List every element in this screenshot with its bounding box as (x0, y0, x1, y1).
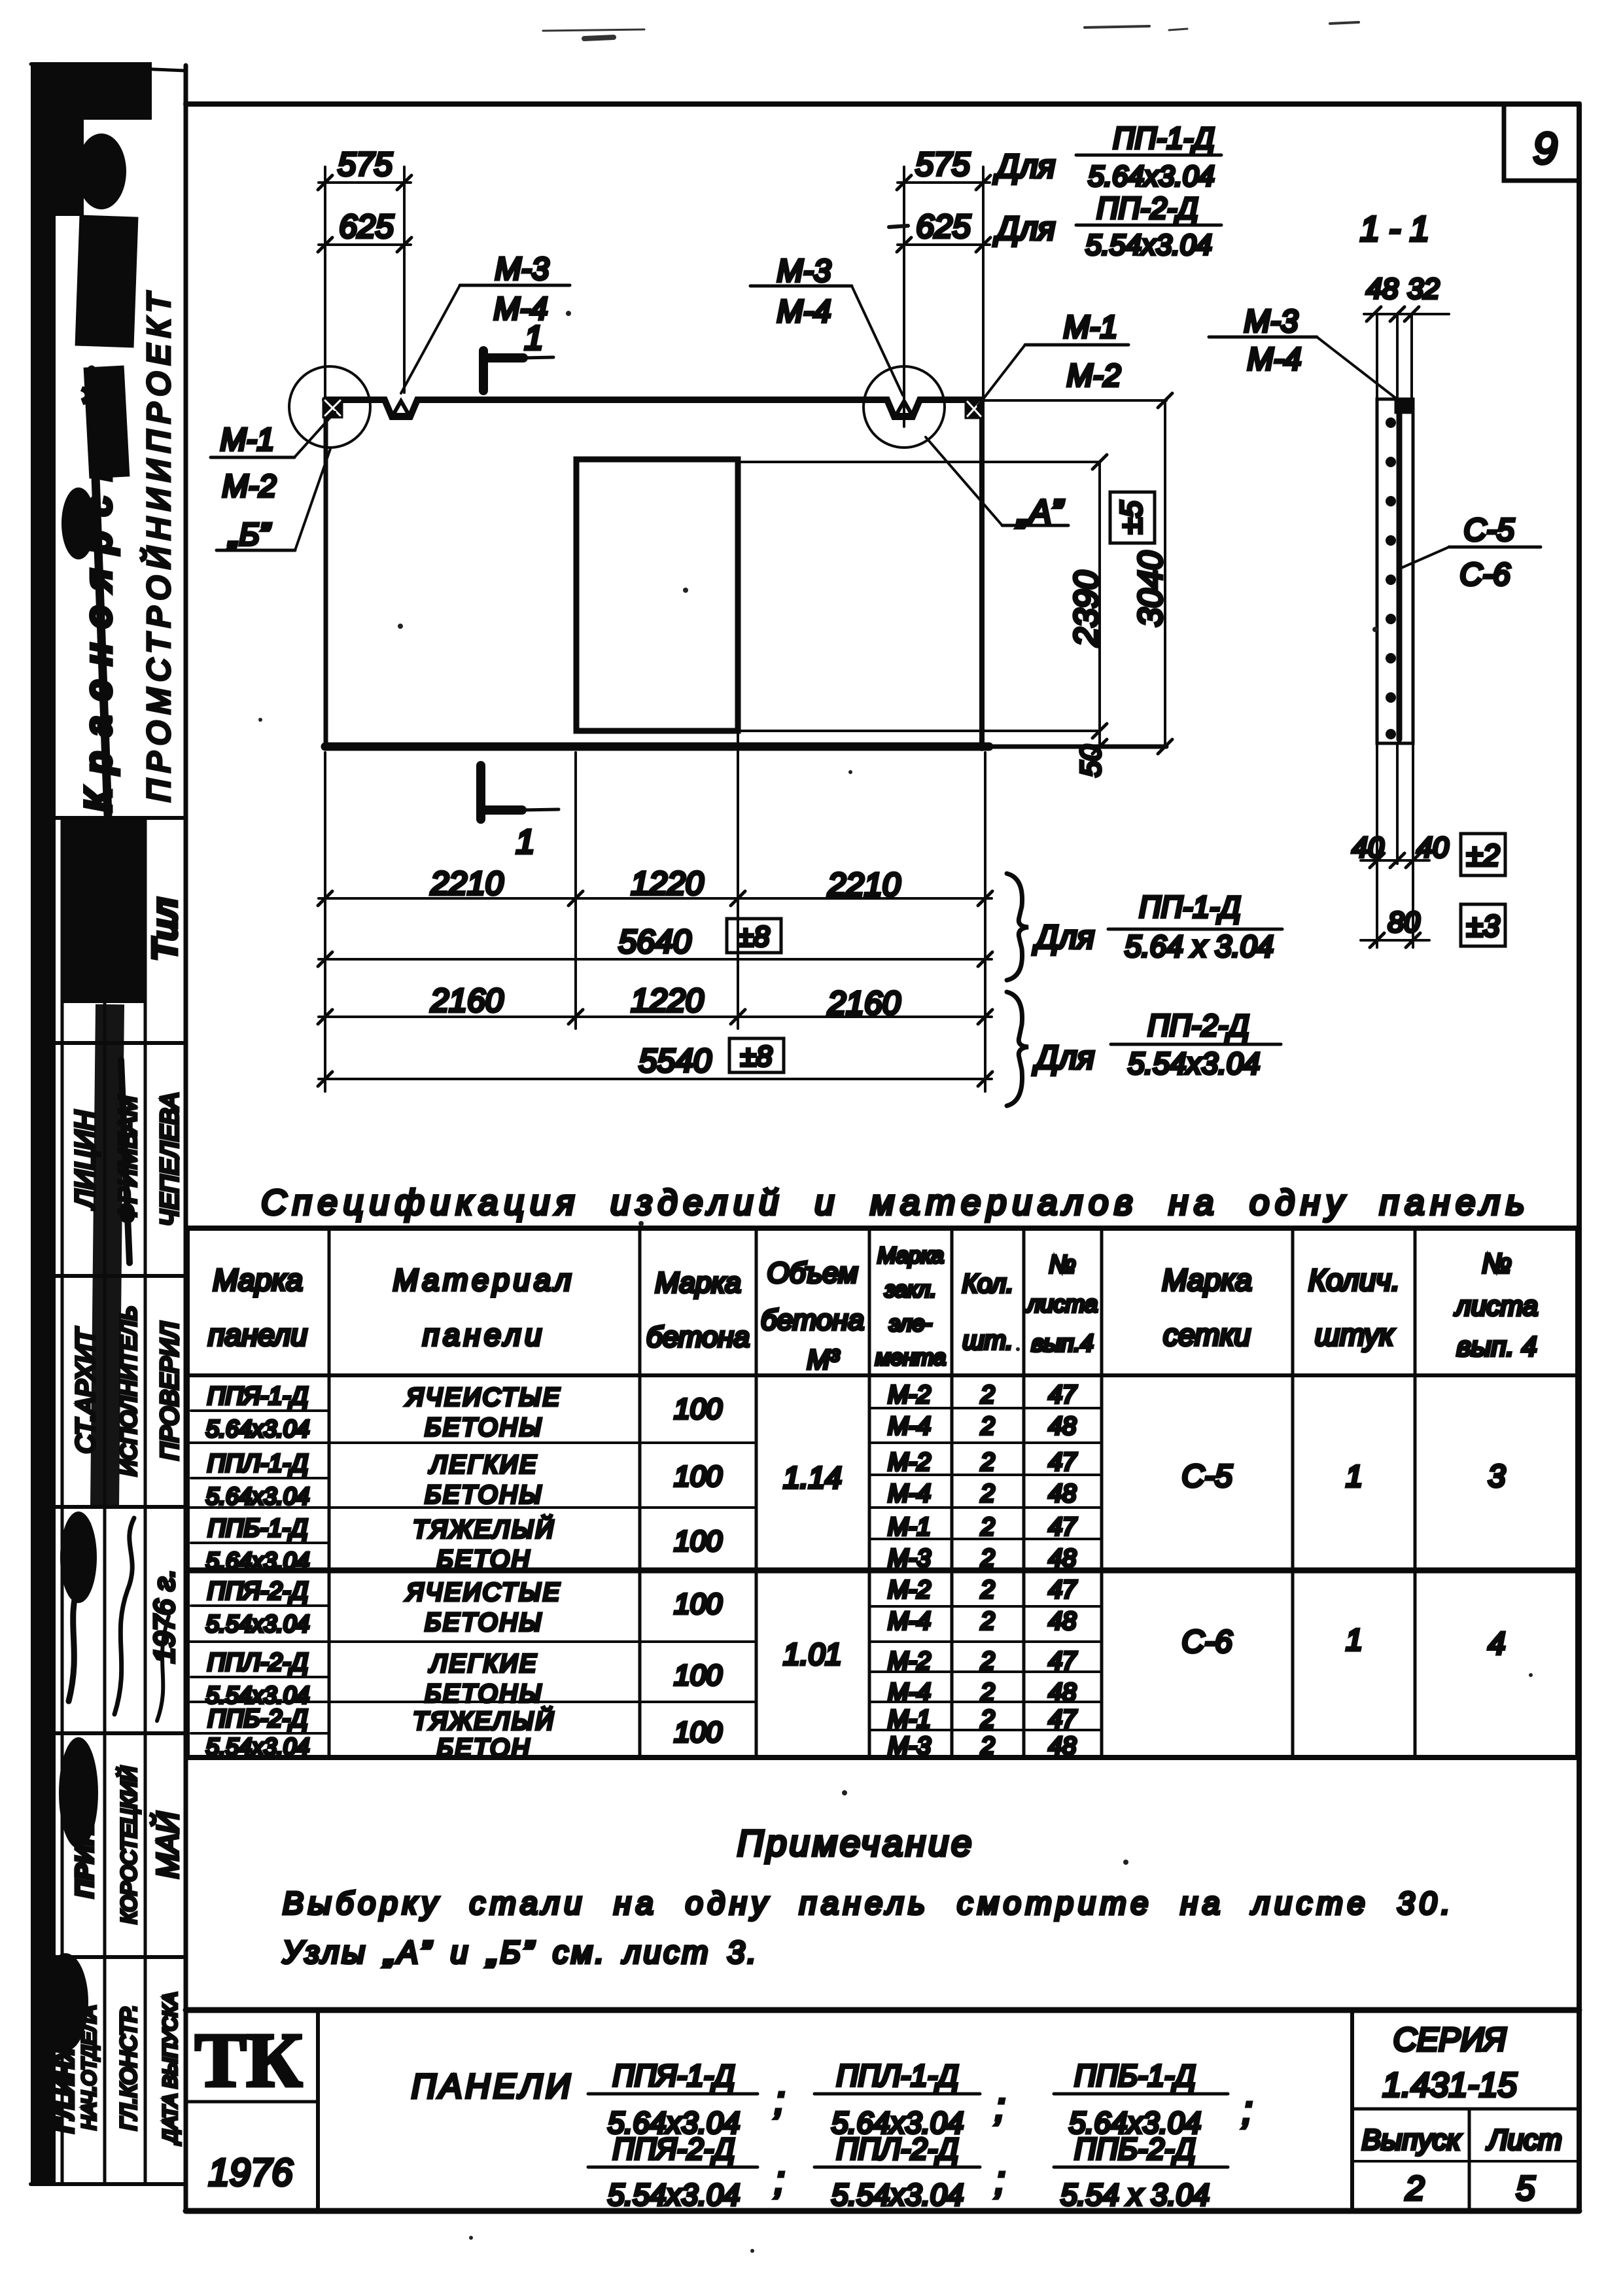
svg-text:ППБ-1-Д: ППБ-1-Д (1074, 2058, 1195, 2093)
svg-text:ЧЕПЕЛЕВА: ЧЕПЕЛЕВА (156, 1093, 184, 1227)
svg-text:ПП-2-Д: ПП-2-Д (1096, 191, 1198, 225)
svg-text:Спецификация изделий и материа: Спецификация изделий и материалов на одн… (261, 1183, 1530, 1222)
svg-text:ТЯЖЕЛЫЙ: ТЯЖЕЛЫЙ (413, 1515, 555, 1544)
svg-text:2: 2 (980, 1679, 994, 1706)
svg-text:1: 1 (516, 823, 535, 861)
svg-text:100: 100 (674, 1525, 722, 1557)
svg-text:2: 2 (980, 1545, 994, 1572)
svg-text:М-3: М-3 (1244, 304, 1299, 339)
svg-text:М-3: М-3 (888, 1545, 930, 1572)
svg-text:1: 1 (1346, 1623, 1363, 1657)
svg-text:50: 50 (1075, 745, 1107, 777)
svg-text:эле-: эле- (889, 1311, 932, 1336)
svg-text:±8: ±8 (741, 1040, 773, 1072)
svg-text:М-2: М-2 (888, 1576, 930, 1604)
svg-text:листа: листа (1454, 1290, 1538, 1321)
svg-text:№: № (1482, 1248, 1512, 1279)
svg-text:;: ; (774, 2158, 785, 2202)
svg-text:40: 40 (1417, 832, 1449, 864)
svg-text:2: 2 (980, 1513, 994, 1541)
svg-text:2210: 2210 (430, 865, 503, 902)
svg-text:5.64х3.04: 5.64х3.04 (1088, 160, 1214, 192)
svg-text:Лист: Лист (1486, 2124, 1562, 2156)
svg-text:48: 48 (1049, 1733, 1076, 1760)
svg-text:С-6: С-6 (1181, 1625, 1232, 1659)
svg-text:5.54х3.04: 5.54х3.04 (206, 1733, 309, 1760)
svg-text:М-1: М-1 (888, 1513, 930, 1541)
svg-text:бетона: бетона (761, 1304, 864, 1336)
svg-text:вып. 4: вып. 4 (1457, 1331, 1537, 1362)
svg-text:Кол.: Кол. (962, 1269, 1014, 1298)
svg-text:100: 100 (674, 1659, 722, 1691)
svg-text:1976: 1976 (208, 2151, 293, 2194)
svg-text:80: 80 (1388, 906, 1420, 938)
svg-text:2: 2 (980, 1733, 994, 1760)
svg-text:вып.4: вып.4 (1031, 1330, 1093, 1356)
svg-text:мента: мента (875, 1345, 946, 1370)
svg-text:5.54х3.04: 5.54х3.04 (206, 1682, 309, 1708)
svg-text:1-1: 1-1 (1360, 209, 1439, 249)
svg-text:5.54х3.04: 5.54х3.04 (206, 1610, 309, 1637)
svg-text:5.54х3.04: 5.54х3.04 (1085, 229, 1212, 261)
svg-text:5.64х3.04: 5.64х3.04 (206, 1415, 309, 1442)
svg-text:ПАНЕЛИ: ПАНЕЛИ (411, 2068, 573, 2106)
svg-text:9: 9 (1533, 124, 1558, 173)
svg-text:ППЛ-1-Д: ППЛ-1-Д (207, 1450, 308, 1477)
svg-text:1220: 1220 (631, 982, 703, 1019)
svg-text:32: 32 (1408, 273, 1440, 305)
svg-text:2: 2 (1405, 2170, 1425, 2208)
svg-text:100: 100 (674, 1393, 722, 1425)
svg-text:100: 100 (674, 1588, 722, 1620)
svg-text:;: ; (994, 2158, 1005, 2202)
svg-text:М-2: М-2 (888, 1449, 930, 1476)
svg-text:М-4: М-4 (494, 292, 548, 327)
svg-text:1220: 1220 (631, 865, 703, 902)
svg-text:ЛЕГКИЕ: ЛЕГКИЕ (428, 1451, 538, 1479)
svg-text:1976 г.: 1976 г. (148, 1569, 181, 1663)
svg-text:МАЙ: МАЙ (150, 1812, 184, 1879)
svg-text:М-4: М-4 (1248, 342, 1302, 377)
svg-text:;: ; (1242, 2088, 1253, 2132)
svg-text:±3: ±3 (1467, 909, 1500, 943)
svg-text:ППЛ-2-Д: ППЛ-2-Д (837, 2132, 959, 2166)
svg-text:панели: панели (423, 1318, 546, 1352)
svg-text:С-6: С-6 (1459, 557, 1510, 592)
svg-text:М-3: М-3 (495, 252, 550, 287)
svg-text:±8: ±8 (738, 921, 770, 953)
svg-text:;: ; (774, 2078, 785, 2122)
svg-text:2: 2 (980, 1449, 994, 1476)
svg-text:2210: 2210 (827, 866, 900, 903)
svg-text:2390: 2390 (1068, 571, 1106, 647)
svg-text:Для: Для (993, 210, 1055, 247)
svg-text:М-4: М-4 (777, 294, 831, 329)
svg-text:Для: Для (1032, 919, 1094, 955)
svg-text:Выборку стали на одну панель с: Выборку стали на одну панель смотрите на… (283, 1886, 1455, 1921)
svg-text:бетона: бетона (646, 1321, 750, 1353)
svg-text:47: 47 (1049, 1449, 1077, 1476)
svg-text:ЛИЦИН: ЛИЦИН (69, 1110, 100, 1210)
svg-text:625: 625 (916, 208, 971, 245)
svg-text:47: 47 (1049, 1381, 1077, 1409)
svg-text:БЕТОН: БЕТОН (437, 1735, 531, 1762)
svg-text:100: 100 (674, 1716, 722, 1748)
svg-text:М-1: М-1 (220, 423, 275, 457)
svg-text:БЕТОН: БЕТОН (437, 1546, 531, 1574)
svg-text:ТК: ТК (195, 2017, 302, 2103)
svg-text:5.54х3.04: 5.54х3.04 (1128, 1046, 1260, 1080)
svg-text:шт.: шт. (962, 1326, 1013, 1355)
svg-text:2: 2 (980, 1381, 994, 1409)
svg-text:М-2: М-2 (888, 1648, 930, 1675)
svg-text:М-1: М-1 (888, 1706, 930, 1733)
svg-text:ППЯ-2-Д: ППЯ-2-Д (613, 2132, 735, 2166)
svg-text:ППЯ-1-Д: ППЯ-1-Д (207, 1383, 308, 1410)
svg-text:2: 2 (980, 1576, 994, 1604)
svg-text:2: 2 (980, 1648, 994, 1675)
svg-text:Марка: Марка (213, 1263, 302, 1297)
svg-text:Объем: Объем (767, 1257, 858, 1289)
svg-text:№: № (1049, 1251, 1075, 1279)
svg-text:5.64 х 3.04: 5.64 х 3.04 (1125, 929, 1274, 963)
svg-text:ТЯЖЕЛЫЙ: ТЯЖЕЛЫЙ (413, 1706, 555, 1735)
svg-text:Для: Для (1032, 1039, 1094, 1076)
svg-text:2: 2 (980, 1480, 994, 1508)
svg-text:ППЯ-2-Д: ППЯ-2-Д (207, 1578, 308, 1605)
svg-text:М-3: М-3 (888, 1733, 930, 1760)
svg-text:48: 48 (1049, 1545, 1076, 1572)
svg-text:ПРОМСТРОЙНИИПРОЕКТ: ПРОМСТРОЙНИИПРОЕКТ (141, 287, 177, 802)
svg-text:ППБ-1-Д: ППБ-1-Д (207, 1515, 307, 1542)
svg-text:БЕТОНЫ: БЕТОНЫ (425, 1609, 543, 1636)
svg-text:5.54х3.04: 5.54х3.04 (831, 2178, 964, 2212)
svg-text:ПРОВЕРИЛ: ПРОВЕРИЛ (156, 1321, 184, 1460)
svg-text:ППЛ-2-Д: ППЛ-2-Д (207, 1649, 308, 1676)
svg-text:СЕРИЯ: СЕРИЯ (1393, 2021, 1507, 2058)
svg-text:ПП-2-Д: ПП-2-Д (1147, 1008, 1249, 1042)
svg-text:48: 48 (1049, 1608, 1076, 1635)
svg-text:3: 3 (1488, 1459, 1506, 1494)
svg-text:625: 625 (339, 208, 394, 245)
svg-text:2: 2 (980, 1608, 994, 1635)
svg-text:С-5: С-5 (1181, 1459, 1232, 1494)
svg-text:2160: 2160 (827, 985, 900, 1021)
svg-text:5.64х3.04: 5.64х3.04 (206, 1547, 309, 1574)
svg-text:1: 1 (1346, 1459, 1363, 1493)
svg-text:5.54 х 3.04: 5.54 х 3.04 (1060, 2178, 1210, 2212)
svg-text:панели: панели (208, 1318, 307, 1352)
svg-text:Колич.: Колич. (1308, 1263, 1400, 1297)
svg-text:М-2: М-2 (1067, 359, 1121, 393)
svg-text:ППЛ-1-Д: ППЛ-1-Д (837, 2058, 959, 2093)
svg-text:Примечание: Примечание (737, 1822, 975, 1863)
svg-text:ЯЧЕИСТЫЕ: ЯЧЕИСТЫЕ (406, 1384, 561, 1411)
svg-text:47: 47 (1049, 1706, 1077, 1733)
svg-text:М³: М³ (807, 1344, 840, 1375)
svg-text:Тил: Тил (145, 897, 184, 961)
svg-text:5640: 5640 (618, 923, 691, 960)
svg-text:Марка: Марка (877, 1243, 944, 1268)
svg-text:штук: штук (1315, 1318, 1395, 1352)
svg-text:ПП-1-Д: ПП-1-Д (1113, 121, 1214, 155)
svg-text:Материал: Материал (393, 1263, 576, 1297)
svg-text:1.431-15: 1.431-15 (1382, 2066, 1517, 2104)
svg-text:ЛЕГКИЕ: ЛЕГКИЕ (428, 1650, 538, 1678)
svg-text:48: 48 (1367, 273, 1399, 305)
svg-text:575: 575 (915, 146, 970, 183)
svg-text:„Б”: „Б” (227, 518, 271, 552)
svg-text:47: 47 (1049, 1576, 1077, 1604)
svg-text:ППЯ-1-Д: ППЯ-1-Д (613, 2058, 735, 2093)
svg-text:С-5: С-5 (1463, 513, 1514, 548)
svg-text:сетки: сетки (1163, 1318, 1251, 1352)
svg-text:±2: ±2 (1467, 838, 1500, 872)
svg-text:ДАТА ВЫПУСКА: ДАТА ВЫПУСКА (160, 1992, 181, 2146)
svg-text:ППБ-2-Д: ППБ-2-Д (1074, 2132, 1195, 2166)
svg-text:100: 100 (674, 1460, 722, 1492)
svg-text:ППБ-2-Д: ППБ-2-Д (207, 1705, 307, 1733)
svg-text:КОРОСТЕЦКИЙ: КОРОСТЕЦКИЙ (117, 1767, 141, 1924)
svg-text:1.01: 1.01 (783, 1637, 842, 1671)
svg-text:М-2: М-2 (222, 469, 277, 504)
svg-text:47: 47 (1049, 1648, 1077, 1675)
svg-text:48: 48 (1049, 1480, 1076, 1508)
svg-text:5.64х3.04: 5.64х3.04 (206, 1483, 309, 1510)
svg-text:М-4: М-4 (888, 1608, 930, 1635)
svg-text:;: ; (994, 2085, 1005, 2128)
svg-text:1.14: 1.14 (783, 1460, 842, 1494)
svg-text:Марка: Марка (1162, 1263, 1251, 1297)
svg-text:М-2: М-2 (888, 1381, 930, 1409)
svg-text:2: 2 (980, 1706, 994, 1733)
svg-text:48: 48 (1049, 1679, 1076, 1706)
svg-text:М-1: М-1 (1064, 310, 1118, 345)
svg-text:48: 48 (1049, 1413, 1076, 1440)
svg-text:4: 4 (1488, 1627, 1506, 1661)
svg-text:2: 2 (980, 1413, 994, 1440)
svg-text:±5: ±5 (1114, 501, 1148, 534)
svg-text:40: 40 (1352, 832, 1384, 864)
svg-text:М-4: М-4 (888, 1413, 930, 1440)
svg-text:БЕТОНЫ: БЕТОНЫ (425, 1481, 543, 1509)
svg-text:ГЛ.КОНСТР.: ГЛ.КОНСТР. (116, 2005, 141, 2130)
svg-text:БЕТОНЫ: БЕТОНЫ (425, 1414, 543, 1441)
svg-text:СТ.АРХИТ: СТ.АРХИТ (71, 1327, 100, 1453)
svg-text:Выпуск: Выпуск (1362, 2124, 1462, 2156)
svg-text:БЕТОНЫ: БЕТОНЫ (425, 1680, 543, 1708)
svg-text:Узлы „А” и „Б” см. лист 3.: Узлы „А” и „Б” см. лист 3. (282, 1935, 759, 1970)
svg-text:М-4: М-4 (888, 1480, 930, 1508)
svg-text:ИСПОЛНИТЕЛЬ: ИСПОЛНИТЕЛЬ (116, 1306, 141, 1476)
svg-text:ПП-1-Д: ПП-1-Д (1139, 890, 1240, 924)
svg-text:ЯЧЕИСТЫЕ: ЯЧЕИСТЫЕ (406, 1579, 561, 1606)
svg-text:3040: 3040 (1132, 551, 1170, 627)
svg-text:Для: Для (993, 148, 1055, 185)
svg-text:575: 575 (338, 146, 393, 183)
svg-text:Марка: Марка (655, 1267, 741, 1299)
svg-text:листа: листа (1026, 1290, 1098, 1317)
svg-text:М-3: М-3 (777, 254, 831, 289)
svg-text:5540: 5540 (638, 1042, 711, 1079)
svg-text:М-4: М-4 (888, 1679, 930, 1706)
svg-text:5: 5 (1516, 2170, 1536, 2208)
svg-text:5.54х3.04: 5.54х3.04 (608, 2178, 740, 2212)
svg-text:47: 47 (1049, 1513, 1077, 1541)
svg-text:закл.: закл. (884, 1277, 936, 1302)
svg-text:2160: 2160 (430, 982, 503, 1019)
